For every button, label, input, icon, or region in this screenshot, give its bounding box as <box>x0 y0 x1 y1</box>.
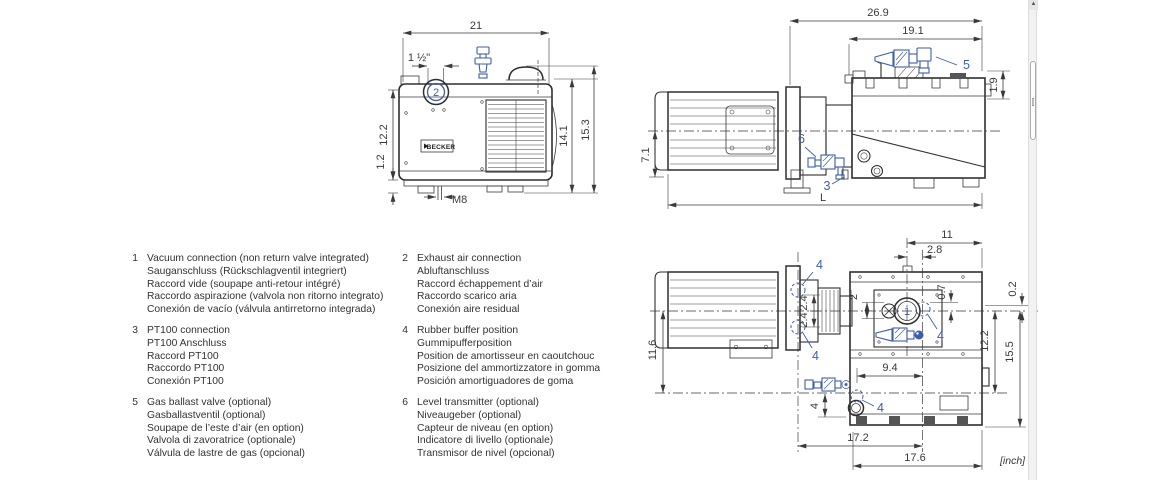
front-view: BECKER 2 <box>375 20 598 206</box>
legend-column-left: 1 Vacuum connection (non return valve in… <box>129 253 429 469</box>
legend-line: Sauganschluss (Rückschlagventil integrie… <box>147 266 383 279</box>
legend-line: Transmisor de nivel (opcional) <box>417 448 555 461</box>
balloon-buffer-4: 4 <box>877 401 884 415</box>
dim-side-axis-height: 7.1 <box>640 147 652 162</box>
dim-mounting-thread: M8 <box>452 194 467 206</box>
legend-line: Vacuum connection (non return valve inte… <box>147 253 383 266</box>
dim-top-flange-to-buffer: 17.2 <box>847 432 868 444</box>
legend-line: Raccordo PT100 <box>147 363 230 376</box>
top-motor <box>655 272 778 358</box>
dim-top-tank-length: 17.6 <box>904 452 925 464</box>
legend-number: 6 <box>399 397 408 461</box>
gas-ballast-valve-icon-top <box>876 328 924 341</box>
dim-front-overall-width: 21 <box>470 20 482 32</box>
top-view: 1 4 4 <box>647 229 1040 470</box>
legend-number: 1 <box>129 253 138 317</box>
legend-item-pt100: 3 PT100 connection PT100 Anschluss Racco… <box>129 325 429 389</box>
legend-line: Niveaugeber (optional) <box>417 410 555 423</box>
legend-line: Conexión de vacío (válvula antirretorno … <box>147 304 383 317</box>
legend-line: Raccord PT100 <box>147 351 230 364</box>
legend-line: Rubber buffer position <box>417 325 600 338</box>
dim-top-tank-overall: 15.5 <box>1004 341 1016 362</box>
becker-logo: BECKER <box>421 140 455 152</box>
legend-line: Raccordo scarico aria <box>417 291 543 304</box>
top-pump-tank: 1 <box>849 266 990 425</box>
vertical-scrollbar[interactable]: ▲ <box>1028 0 1037 480</box>
dim-top-edge-offset: 0.2 <box>1007 281 1019 296</box>
scroll-up-button[interactable]: ▲ <box>1029 0 1038 10</box>
side-view: 5 6 3 26.9 19.1 <box>640 7 1010 209</box>
dim-front-tank-height: 14.1 <box>558 125 570 146</box>
dim-top-flange-upper: 2.4 <box>798 295 810 310</box>
legend-line: Valvola di zavoratrice (optionale) <box>147 435 305 448</box>
balloon-buffer-1: 4 <box>816 258 823 272</box>
legend-line: Level transmitter (optional) <box>417 397 555 410</box>
dim-top-tank-width: 12.2 <box>979 330 991 351</box>
balloon-pt100: 3 <box>824 179 831 193</box>
legend-item-rubber-buffer: 4 Rubber buffer position Gummipufferposi… <box>399 325 659 389</box>
legend-line: Raccordo aspirazione (valvola non ritorn… <box>147 291 383 304</box>
legend-line: Soupape de l’este d’air (en option) <box>147 423 305 436</box>
legend-line: PT100 Anschluss <box>147 338 230 351</box>
legend-number: 2 <box>399 253 408 317</box>
oil-fill-dome <box>506 60 546 94</box>
balloon-buffer-2: 4 <box>812 349 819 363</box>
dim-side-length: L <box>820 192 826 204</box>
legend-line: Raccord échappement d’air <box>417 279 543 292</box>
dim-front-overall-height: 15.3 <box>580 119 592 140</box>
legend-line: Indicatore di livello (optionale) <box>417 435 555 448</box>
legend-item-level-transmitter: 6 Level transmitter (optional) Niveaugeb… <box>399 397 659 461</box>
legend-column-right: 2 Exhaust air connection Abluftanschluss… <box>399 253 659 469</box>
top-flange-coupling <box>786 266 852 350</box>
exhaust-port: 2 <box>424 80 449 105</box>
legend-line: Válvula de lastre de gas (opcional) <box>147 448 305 461</box>
balloon-level-transmitter: 6 <box>798 132 805 146</box>
balloon-exhaust-connection: 2 <box>433 87 439 99</box>
dim-exhaust-size: 1 ½" <box>408 52 430 64</box>
legend-line: Posizione del ammortizzatore in gomma <box>417 363 600 376</box>
scrollbar-grip-icon <box>1032 98 1034 106</box>
oil-sight-glasses <box>858 150 883 177</box>
technical-drawing-page: BECKER 2 <box>0 0 1160 480</box>
cooling-grille <box>486 100 546 172</box>
legend-line: Gas ballast valve (optional) <box>147 397 305 410</box>
dim-top-flange-lower: 2.4 <box>798 312 810 327</box>
legend-number: 4 <box>399 325 408 389</box>
legend-line: PT100 connection <box>147 325 230 338</box>
front-screws <box>405 101 484 171</box>
legend-line: Conexión aire residual <box>417 304 543 317</box>
gas-ballast-valve-icon-side: 5 <box>875 48 970 73</box>
legend-line: Raccord vide (soupape anti-retour intégr… <box>147 279 383 292</box>
dim-side-top-offset: 1.9 <box>988 77 1000 92</box>
legend-line: Position de amortisseur en caoutchouc <box>417 351 600 364</box>
dim-top-drain-offset: 4 <box>809 403 821 409</box>
dim-front-body-height: 12.2 <box>378 124 390 145</box>
dim-top-port-offset: 2.8 <box>927 244 942 256</box>
dim-top-buffer-span: 9.4 <box>882 362 897 374</box>
legend-line: Abluftanschluss <box>417 266 543 279</box>
legend-line: Capteur de niveau (en option) <box>417 423 555 436</box>
scrollbar-thumb[interactable] <box>1030 61 1036 140</box>
legend-line: Gummipufferposition <box>417 338 600 351</box>
dim-front-foot-height: 1.2 <box>375 154 387 169</box>
legend-item-vacuum-connection: 1 Vacuum connection (non return valve in… <box>129 253 429 317</box>
nameplate <box>940 396 968 410</box>
brand-label: BECKER <box>427 144 456 151</box>
level-transmitter-icon-top <box>805 378 850 391</box>
balloon-gas-ballast-valve: 5 <box>963 58 970 72</box>
balloon-vacuum-connection: 1 <box>904 306 910 318</box>
dim-top-port-to-edge: 11 <box>941 229 952 241</box>
dim-side-tank-depth: 19.1 <box>902 25 923 37</box>
legend-line: Gasballastventil (optional) <box>147 410 305 423</box>
dim-top-port-size: 2" <box>848 290 860 300</box>
top-dimensions: 11 2.8 2" 0.7 0.2 2.4 2.4 11.6 <box>647 229 1030 470</box>
balloon-buffer-3: 4 <box>937 329 944 343</box>
legend-line: Conexión PT100 <box>147 376 230 389</box>
gas-ballast-valve-icon-front <box>475 47 491 78</box>
unit-note: [inch] <box>999 455 1026 467</box>
dim-side-overall-depth: 26.9 <box>867 7 888 19</box>
legend-line: Posición amortiguadores de goma <box>417 376 600 389</box>
legend-item-gas-ballast: 5 Gas ballast valve (optional) Gasballas… <box>129 397 429 461</box>
side-pump-tank <box>845 59 991 188</box>
dim-top-buffer-offset: 0.7 <box>936 284 948 299</box>
level-transmitter-icon-side: 6 <box>798 132 844 179</box>
legend-number: 5 <box>129 397 138 461</box>
front-pump-body: BECKER <box>399 60 557 193</box>
pt100-connection-marker: 3 <box>824 170 848 193</box>
legend-number: 3 <box>129 325 138 389</box>
legend-line: Exhaust air connection <box>417 253 543 266</box>
legend-item-exhaust: 2 Exhaust air connection Abluftanschluss… <box>399 253 659 317</box>
